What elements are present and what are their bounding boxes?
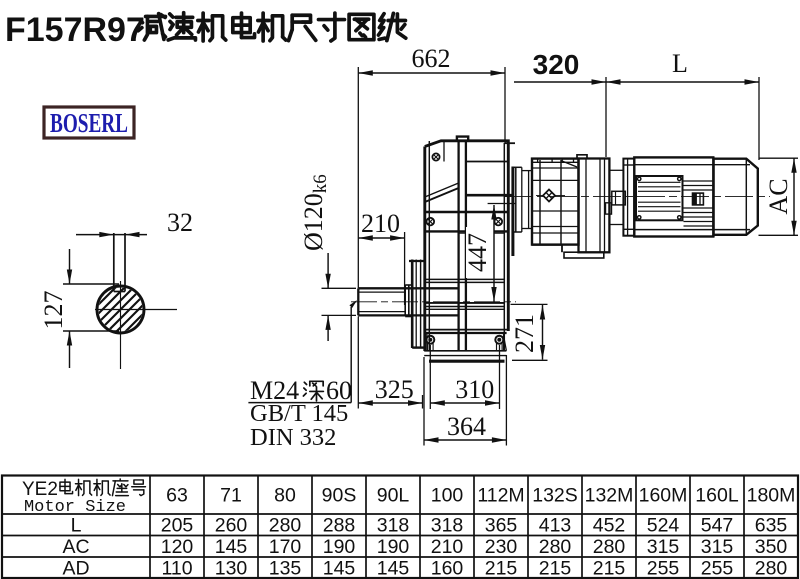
svg-text:547: 547 <box>701 515 734 537</box>
svg-text:YE2: YE2 <box>22 479 58 500</box>
svg-text:32: 32 <box>167 208 193 237</box>
svg-text:170: 170 <box>269 536 302 558</box>
svg-text:160: 160 <box>431 558 464 579</box>
svg-text:210: 210 <box>361 209 400 238</box>
svg-text:318: 318 <box>377 515 410 537</box>
svg-text:63: 63 <box>166 485 188 507</box>
svg-text:288: 288 <box>323 515 356 537</box>
svg-text:315: 315 <box>647 536 680 558</box>
svg-text:320: 320 <box>533 49 580 80</box>
svg-text:190: 190 <box>323 536 356 558</box>
svg-text:452: 452 <box>593 515 626 537</box>
svg-text:132M: 132M <box>585 485 634 507</box>
svg-text:Ø120k6: Ø120k6 <box>299 174 331 251</box>
svg-text:GB/T 145: GB/T 145 <box>250 400 348 427</box>
svg-text:318: 318 <box>431 515 464 537</box>
svg-text:AD: AD <box>62 558 89 579</box>
svg-text:635: 635 <box>755 515 788 537</box>
svg-text:280: 280 <box>539 536 572 558</box>
svg-text:90S: 90S <box>322 485 357 507</box>
svg-text:90L: 90L <box>377 485 410 507</box>
svg-text:315: 315 <box>701 536 734 558</box>
svg-text:413: 413 <box>539 515 572 537</box>
svg-text:271: 271 <box>510 314 539 353</box>
svg-text:230: 230 <box>485 536 518 558</box>
svg-text:L: L <box>672 49 688 78</box>
svg-text:145: 145 <box>215 536 248 558</box>
svg-text:DIN 332: DIN 332 <box>250 424 336 451</box>
svg-text:364: 364 <box>447 412 486 441</box>
svg-text:AC: AC <box>764 178 793 214</box>
svg-text:662: 662 <box>412 44 451 73</box>
svg-text:100: 100 <box>431 485 464 507</box>
svg-text:145: 145 <box>377 558 410 579</box>
svg-text:215: 215 <box>539 558 572 579</box>
svg-text:190: 190 <box>377 536 410 558</box>
svg-text:524: 524 <box>647 515 680 537</box>
svg-text:130: 130 <box>215 558 248 579</box>
svg-text:160M: 160M <box>639 485 688 507</box>
svg-text:71: 71 <box>220 485 242 507</box>
svg-text:160L: 160L <box>695 485 739 507</box>
svg-text:260: 260 <box>215 515 248 537</box>
svg-text:BOSERL: BOSERL <box>50 108 128 138</box>
svg-text:110: 110 <box>161 558 192 579</box>
svg-text:135: 135 <box>269 558 302 579</box>
svg-text:205: 205 <box>161 515 194 537</box>
svg-text:132S: 132S <box>532 485 578 507</box>
svg-text:447: 447 <box>463 233 492 272</box>
svg-text:127: 127 <box>39 291 68 330</box>
svg-text:280: 280 <box>593 536 626 558</box>
svg-text:112M: 112M <box>477 485 524 507</box>
svg-text:80: 80 <box>274 485 296 507</box>
svg-text:255: 255 <box>701 558 734 579</box>
svg-text:350: 350 <box>755 536 788 558</box>
svg-text:145: 145 <box>323 558 356 579</box>
svg-text:255: 255 <box>647 558 680 579</box>
svg-text:120: 120 <box>161 536 194 558</box>
svg-text:280: 280 <box>269 515 302 537</box>
svg-text:210: 210 <box>431 536 464 558</box>
svg-text:325: 325 <box>375 375 414 404</box>
svg-text:310: 310 <box>455 375 494 404</box>
svg-text:215: 215 <box>593 558 626 579</box>
svg-text:AC: AC <box>62 536 89 558</box>
svg-text:215: 215 <box>485 558 518 579</box>
svg-text:F157R97: F157R97 <box>5 11 145 49</box>
svg-text:365: 365 <box>485 515 518 537</box>
svg-text:L: L <box>71 515 82 537</box>
svg-text:180M: 180M <box>747 485 796 507</box>
svg-text:280: 280 <box>755 558 788 579</box>
